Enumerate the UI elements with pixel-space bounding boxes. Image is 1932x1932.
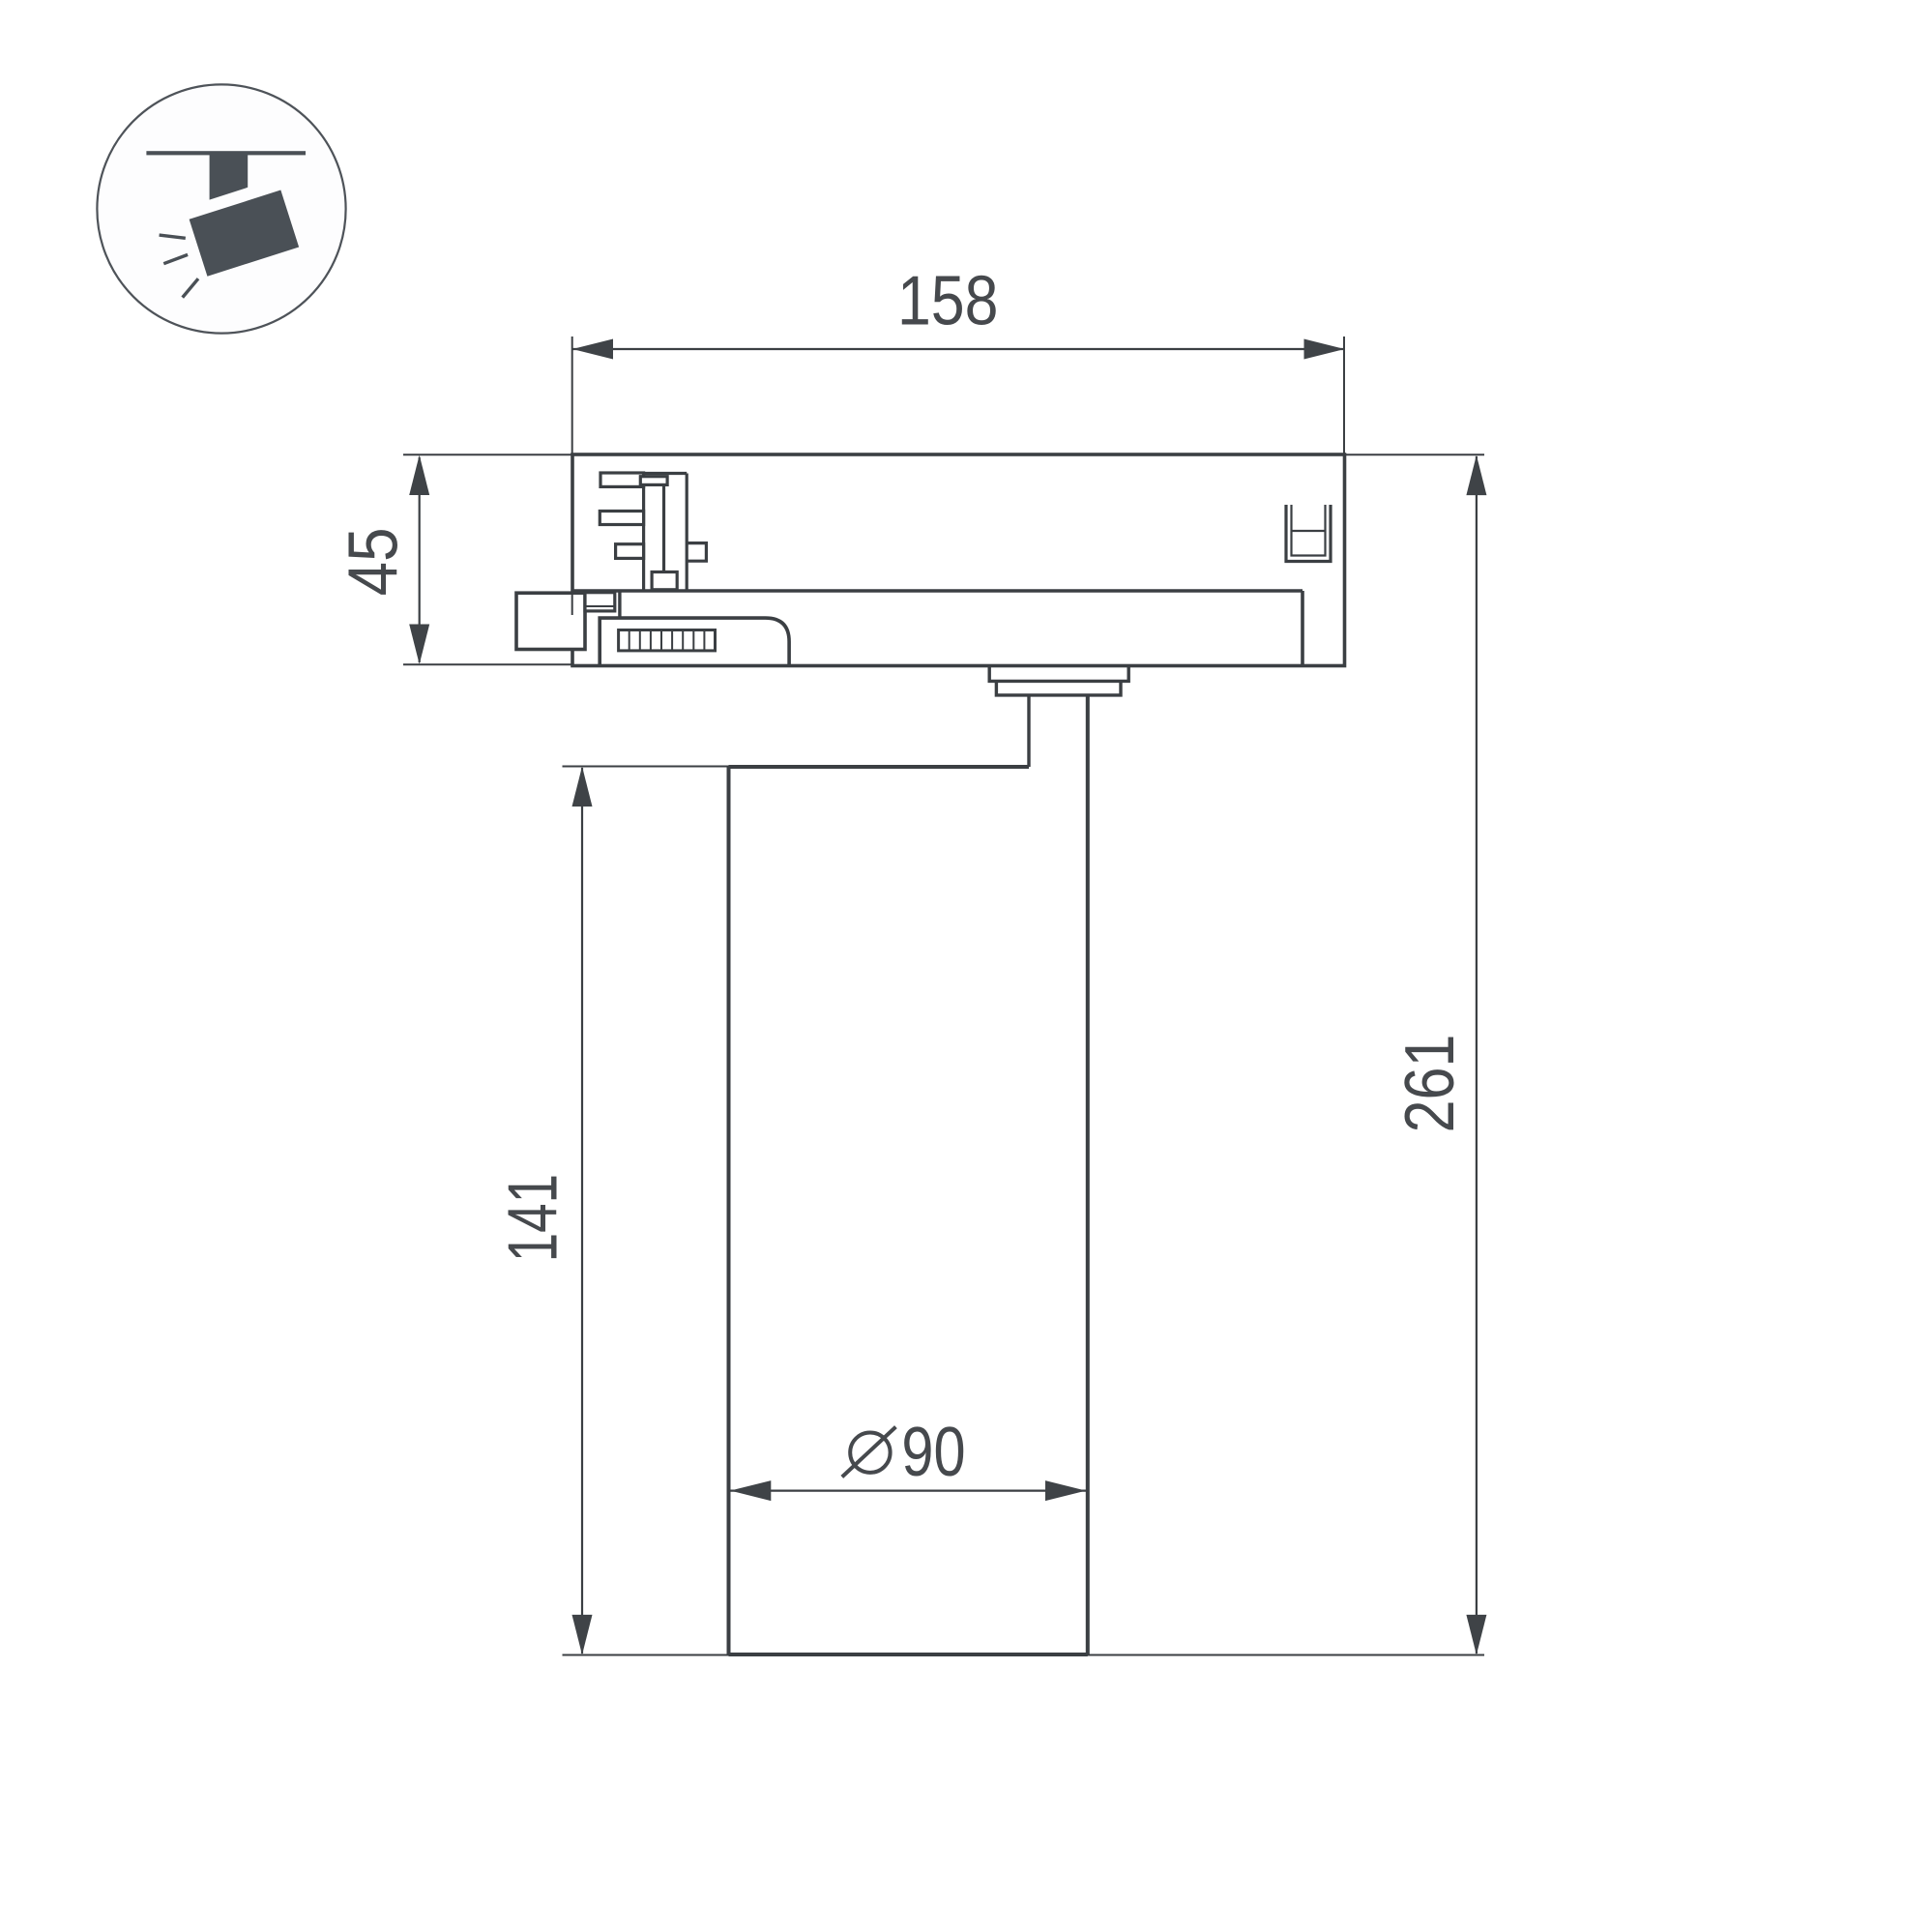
svg-text:45: 45 (335, 527, 412, 596)
svg-text:261: 261 (1392, 1034, 1470, 1132)
svg-text:158: 158 (897, 262, 998, 339)
svg-text:141: 141 (493, 1174, 571, 1262)
svg-text:90: 90 (901, 1413, 965, 1491)
